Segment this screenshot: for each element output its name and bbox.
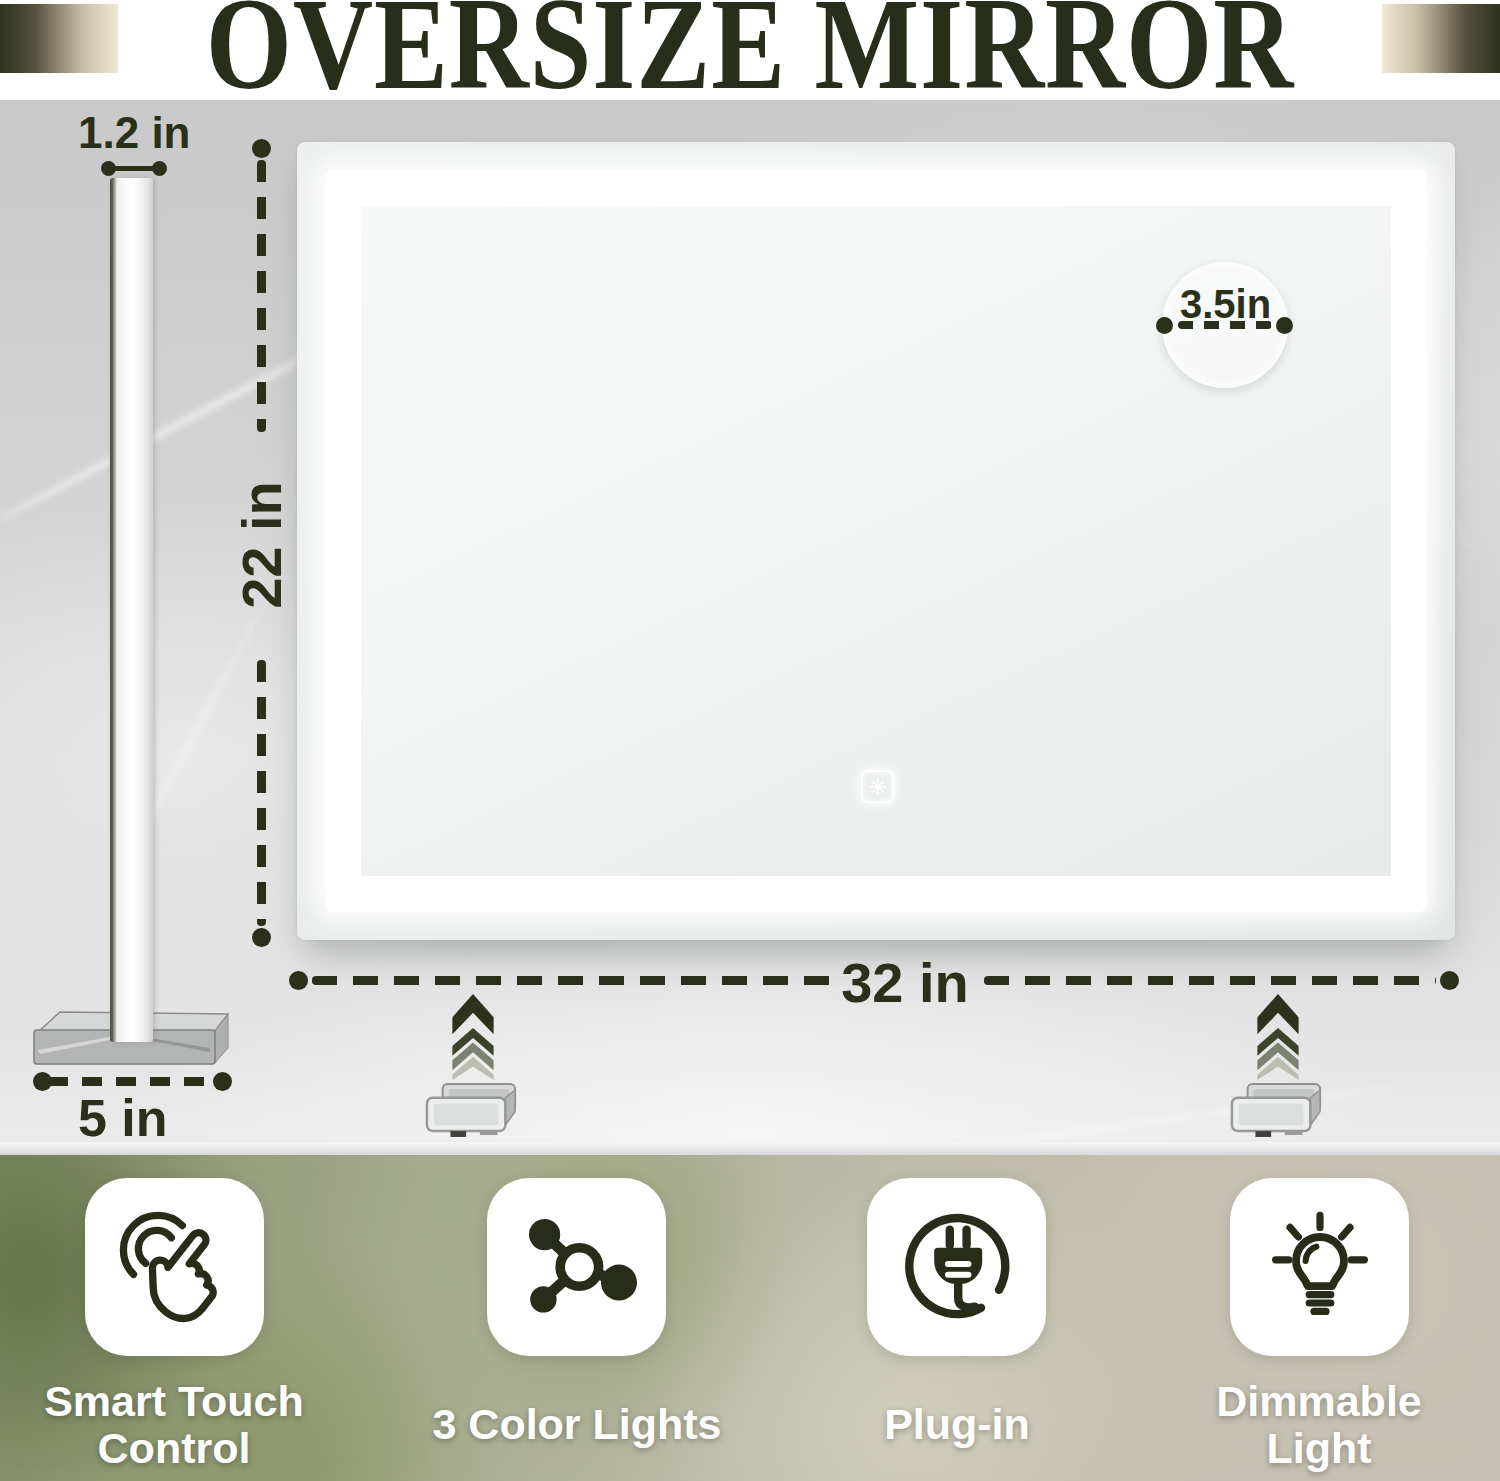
power-plug-icon: [897, 1207, 1017, 1327]
dimension-endpoint-dot: [252, 928, 271, 947]
feature-label-plug-in: Plug-in: [777, 1366, 1137, 1481]
dimension-endpoint-dot: [213, 1072, 232, 1091]
width-dimension-line-left: [312, 976, 832, 985]
mount-indicator-left: [423, 994, 523, 1139]
dimension-endpoint-dot: [252, 139, 271, 158]
infographic-canvas: OVERSIZE MIRROR 1.2 in 5 in 22 in 3.5in: [0, 0, 1500, 1481]
feature-card-dimmable: [1230, 1178, 1409, 1356]
touch-gesture-icon: [114, 1206, 236, 1328]
feature-card-color-lights: [487, 1178, 666, 1356]
molecule-lights-icon: [517, 1207, 637, 1327]
width-dimension-line-right: [984, 976, 1436, 985]
dimension-endpoint-dot: [1156, 317, 1173, 334]
dimension-endpoint-dot: [289, 971, 308, 990]
touch-sensor-button[interactable]: [861, 770, 894, 803]
up-arrow-icon: [1257, 994, 1299, 1080]
dimension-endpoint-dot: [152, 161, 167, 176]
light-glyph-icon: [869, 778, 887, 796]
feature-card-smart-touch: [85, 1178, 264, 1356]
base-width-dimension-line: [48, 1077, 220, 1086]
counter-edge: [0, 1142, 1500, 1155]
feature-label-smart-touch: Smart Touch Control: [14, 1366, 334, 1481]
feature-label-dimmable: Dimmable Light: [1189, 1366, 1449, 1481]
thickness-dimension-label: 1.2 in: [78, 108, 191, 158]
feature-card-plug-in: [867, 1178, 1046, 1356]
width-dimension-label: 32 in: [805, 950, 1005, 1015]
up-arrow-icon: [452, 994, 494, 1080]
header-band: OVERSIZE MIRROR: [0, 0, 1500, 100]
height-dimension-line-top: [257, 160, 266, 432]
mount-indicator-right: [1228, 994, 1328, 1139]
page-title: OVERSIZE MIRROR: [90, 0, 1410, 105]
dimension-endpoint-dot: [1276, 317, 1293, 334]
wall-bracket-image: [1228, 1082, 1326, 1139]
dimension-endpoint-dot: [1440, 971, 1459, 990]
light-bulb-icon: [1260, 1207, 1380, 1327]
feature-label-color-lights: 3 Color Lights: [397, 1366, 757, 1481]
sensor-zone-dimension-line: [1178, 321, 1272, 329]
mirror-side-profile: [110, 178, 153, 1042]
base-width-dimension-label: 5 in: [78, 1088, 168, 1148]
wall-bracket-image: [423, 1082, 521, 1139]
dimension-endpoint-dot: [33, 1072, 52, 1091]
dimension-endpoint-dot: [101, 161, 116, 176]
height-dimension-line-bottom: [257, 660, 266, 926]
mirror-front-view: [297, 142, 1455, 940]
